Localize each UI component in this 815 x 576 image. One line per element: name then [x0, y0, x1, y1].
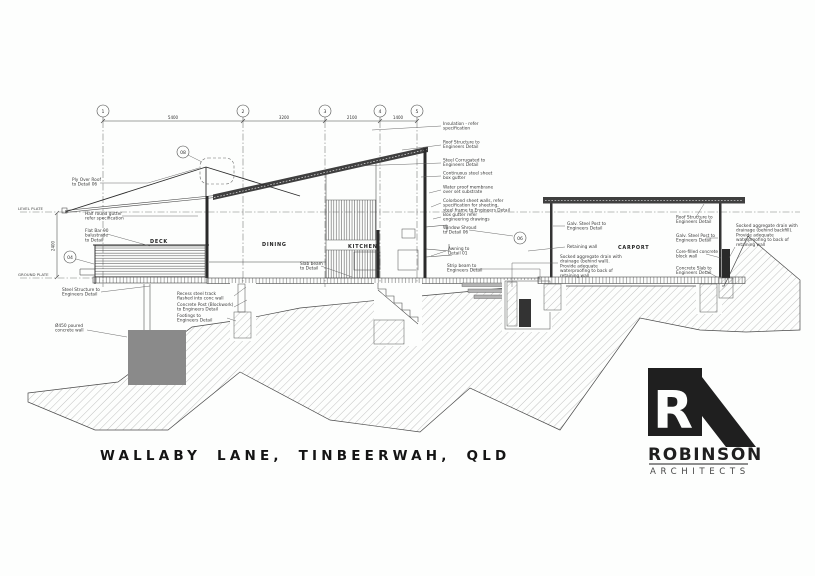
- annotations-right: Insulation - refer specification Roof St…: [354, 121, 540, 277]
- note-window-shroud: to Detail 06: [443, 230, 468, 236]
- note-recess-track: flashed into conc wall: [177, 296, 224, 302]
- grid-bubble-label: 5: [416, 109, 419, 115]
- note-awning: Detail 01: [448, 251, 468, 257]
- note-drain-left: retaining wall: [560, 273, 589, 279]
- architect-logo: R ROBINSON ARCHITECTS: [648, 368, 763, 477]
- deck-balustrade-screen: [95, 246, 205, 277]
- note-drain-right: retaining wall: [736, 242, 765, 248]
- retaining-wall: [507, 282, 517, 326]
- dimension-value: 2100: [347, 115, 358, 120]
- drawing-sheet: 1 2 3 4 5 5400 3200 2100 1400 2400 LEVEL…: [0, 0, 815, 576]
- note-leader: [469, 230, 513, 236]
- retaining-footing: [519, 299, 531, 327]
- detail-marker-label: 08: [180, 150, 186, 156]
- section-drawing: 1 2 3 4 5 5400 3200 2100 1400 2400 LEVEL…: [0, 0, 815, 576]
- carport-footing: [544, 284, 561, 310]
- note-footings: Engineers Detail: [177, 318, 212, 324]
- window-shroud-bottom: [426, 249, 449, 251]
- block-wall: [722, 249, 730, 278]
- vertical-dimension-value: 2400: [51, 240, 56, 251]
- project-title: WALLABY LANE, TINBEERWAH, QLD: [100, 448, 510, 464]
- room-label-dining: DINING: [262, 242, 287, 248]
- kitchen-batten-screen-lower: [326, 250, 376, 278]
- note-carport-post-right: Engineers Detail: [676, 238, 711, 244]
- note-roof-structure: Engineers Detail: [443, 144, 478, 150]
- grid-bubble-label: 1: [102, 109, 105, 115]
- detail-marker-leader: [76, 259, 94, 264]
- note-carport-post-left: Engineers Detail: [567, 226, 602, 232]
- detail-marker-leader: [188, 155, 202, 162]
- dimension-value: 1400: [393, 115, 404, 120]
- note-insulation: specification: [443, 126, 470, 132]
- carport-post-right: [719, 204, 722, 278]
- room-label-deck: DECK: [150, 239, 168, 245]
- note-leader: [372, 126, 441, 130]
- block-wall-footing: [719, 278, 733, 298]
- logo-subtitle: ARCHITECTS: [650, 467, 750, 477]
- note-leader: [87, 330, 127, 337]
- note-roof-corrugated: Engineers Detail: [443, 162, 478, 168]
- note-box-gutter-sheet: box gutter: [443, 175, 466, 181]
- note-gutter: refer specification: [85, 216, 124, 222]
- house-structure: [206, 148, 541, 284]
- carport-footing: [700, 284, 717, 312]
- wall-house-right: [424, 148, 427, 278]
- note-slab-beam: to Detail: [300, 266, 318, 272]
- note-ply-roof: to Detail 06: [72, 182, 97, 188]
- kitchen-cabinet: [402, 229, 415, 238]
- note-leader: [429, 190, 441, 193]
- deck-floor-band: [93, 277, 207, 283]
- upper-datum-label: LEVEL PLATE: [18, 206, 43, 211]
- stair-footing: [374, 320, 404, 344]
- note-concrete-wall: concrete wall: [55, 328, 84, 334]
- kitchen-island: [398, 250, 418, 270]
- lower-datum-label: GROUND PLATE: [18, 272, 49, 277]
- room-label-kitchen: KITCHEN: [348, 244, 378, 250]
- dimension-value: 3200: [279, 115, 290, 120]
- note-leader: [101, 286, 150, 292]
- carport-post-left: [550, 204, 553, 278]
- dimension-ticks: [101, 117, 419, 123]
- note-box-gutter: engineering drawings: [443, 217, 490, 223]
- logo-name: ROBINSON: [648, 445, 763, 465]
- detail-marker-label: 06: [517, 236, 523, 242]
- note-carport-roof: Engineers Detail: [676, 219, 711, 225]
- note-leader: [528, 247, 565, 251]
- note-leader: [100, 168, 199, 183]
- grid-bubble-label: 3: [324, 109, 327, 115]
- grid-bubble-label: 4: [379, 109, 382, 115]
- roof-apex-callout-box: [200, 158, 234, 184]
- note-block-wall: block wall: [676, 254, 697, 260]
- note-retaining-wall: Retaining wall: [567, 244, 597, 250]
- grid-bubble-label: 2: [242, 109, 245, 115]
- note-leader: [107, 234, 150, 246]
- note-strip-beam: Engineers Detail: [447, 268, 482, 274]
- note-concrete-post: to Engineers Detail: [177, 307, 218, 313]
- note-membrane: over set substrate: [443, 189, 483, 195]
- pier-footing: [234, 312, 251, 338]
- logo-monogram-letter: R: [653, 381, 693, 441]
- concrete-footing-block: [128, 330, 186, 385]
- note-steel-structure: Engineers Detail: [62, 292, 97, 298]
- note-leader: [431, 251, 446, 256]
- kitchen-batten-screen-upper: [326, 200, 376, 240]
- floor-structure-band: [207, 278, 540, 284]
- wall-kitchen: [377, 230, 380, 278]
- note-balustrade: to Detail: [85, 237, 103, 243]
- wall-dining-left: [206, 196, 209, 278]
- room-label-carport: CARPORT: [618, 245, 649, 251]
- detail-marker-label: 04: [67, 255, 73, 261]
- note-leader: [433, 217, 441, 219]
- roof-eave-line: [65, 196, 215, 211]
- dimension-value: 5400: [168, 115, 179, 120]
- note-leader: [431, 203, 441, 207]
